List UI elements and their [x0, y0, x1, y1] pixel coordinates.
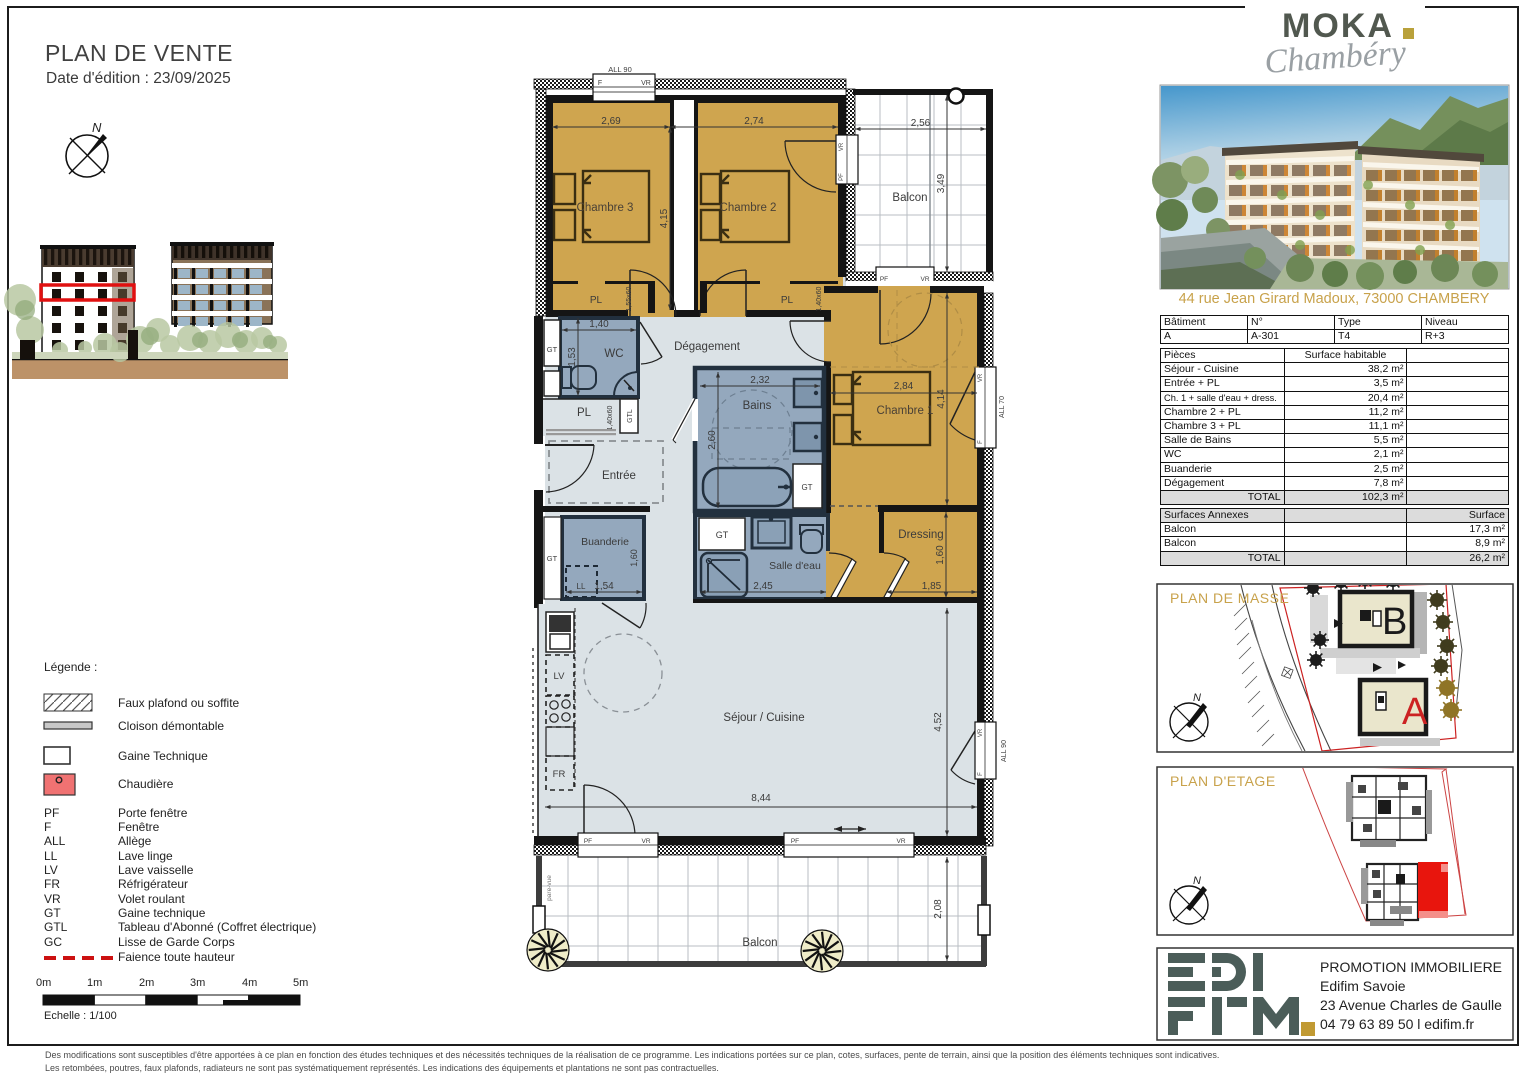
svg-text:VR: VR — [641, 80, 651, 87]
svg-text:F: F — [978, 440, 984, 444]
svg-text:Chambre 3: Chambre 3 — [577, 202, 634, 214]
svg-text:ALL 90: ALL 90 — [608, 65, 632, 74]
svg-text:N: N — [1193, 875, 1201, 887]
svg-text:1,53: 1,53 — [567, 347, 578, 367]
svg-text:PL: PL — [781, 295, 794, 306]
svg-text:LL: LL — [577, 582, 586, 591]
svg-text:PF: PF — [584, 838, 592, 845]
svg-text:2,08: 2,08 — [933, 899, 944, 919]
svg-text:GTL: GTL — [627, 409, 634, 423]
svg-text:GT: GT — [547, 554, 558, 563]
svg-text:2,84: 2,84 — [894, 381, 914, 392]
svg-text:1,60: 1,60 — [935, 545, 946, 565]
svg-text:N: N — [92, 120, 102, 135]
svg-text:2,60: 2,60 — [707, 430, 718, 450]
svg-text:Dégagement: Dégagement — [674, 341, 741, 353]
svg-text:4,52: 4,52 — [933, 712, 944, 732]
svg-text:WC: WC — [604, 348, 623, 360]
svg-text:Séjour / Cuisine: Séjour / Cuisine — [723, 712, 804, 724]
svg-text:1,60: 1,60 — [629, 549, 639, 567]
svg-text:VR: VR — [896, 838, 905, 845]
svg-text:Chambre 2: Chambre 2 — [720, 202, 777, 214]
svg-text:2,45: 2,45 — [753, 581, 773, 592]
svg-text:4,14: 4,14 — [936, 389, 947, 409]
svg-text:PF: PF — [791, 838, 799, 845]
svg-text:1,40: 1,40 — [589, 319, 609, 330]
svg-text:1,54: 1,54 — [594, 581, 614, 592]
svg-text:F: F — [978, 772, 984, 776]
svg-text:Balcon: Balcon — [742, 937, 777, 949]
svg-text:PF: PF — [839, 173, 845, 181]
svg-text:N: N — [1193, 692, 1201, 704]
svg-text:2,69: 2,69 — [601, 116, 621, 127]
svg-text:VR: VR — [978, 373, 984, 382]
svg-text:8,44: 8,44 — [751, 793, 771, 804]
svg-text:Chambre 1: Chambre 1 — [877, 405, 934, 417]
svg-text:3,49: 3,49 — [936, 173, 947, 193]
svg-text:F: F — [598, 80, 602, 87]
svg-text:2,32: 2,32 — [750, 375, 770, 386]
svg-text:GT: GT — [547, 345, 558, 354]
svg-text:1,40x60: 1,40x60 — [816, 286, 823, 311]
svg-text:4,15: 4,15 — [659, 208, 670, 228]
svg-text:A: A — [1402, 691, 1428, 733]
svg-text:Dressing: Dressing — [898, 529, 943, 541]
svg-text:2,56: 2,56 — [911, 118, 931, 129]
svg-text:FR: FR — [553, 769, 566, 780]
svg-text:GT: GT — [716, 530, 729, 540]
svg-text:44 rue Jean Girard Madoux, 730: 44 rue Jean Girard Madoux, 73000 CHAMBER… — [1179, 291, 1490, 307]
svg-text:LV: LV — [554, 671, 566, 682]
svg-text:PL: PL — [577, 407, 592, 419]
svg-text:PL: PL — [590, 295, 603, 306]
svg-text:ALL 90: ALL 90 — [1001, 740, 1008, 762]
svg-text:GT: GT — [801, 483, 812, 492]
svg-text:B: B — [1382, 601, 1407, 643]
svg-text:1,85: 1,85 — [922, 581, 942, 592]
svg-text:Bains: Bains — [743, 400, 772, 412]
svg-text:1,55x60: 1,55x60 — [626, 286, 633, 311]
svg-text:Buanderie: Buanderie — [581, 536, 629, 548]
svg-text:Entrée: Entrée — [602, 470, 636, 482]
svg-text:ALL 70: ALL 70 — [999, 396, 1006, 418]
svg-text:VR: VR — [839, 142, 845, 151]
svg-text:VR: VR — [641, 838, 650, 845]
svg-text:Balcon: Balcon — [892, 192, 927, 204]
svg-text:VR: VR — [978, 728, 984, 737]
svg-text:Salle d'eau: Salle d'eau — [769, 560, 821, 572]
svg-text:2,74: 2,74 — [744, 116, 764, 127]
svg-text:1,40x60: 1,40x60 — [607, 405, 614, 430]
svg-text:pare-vue: pare-vue — [546, 875, 553, 901]
